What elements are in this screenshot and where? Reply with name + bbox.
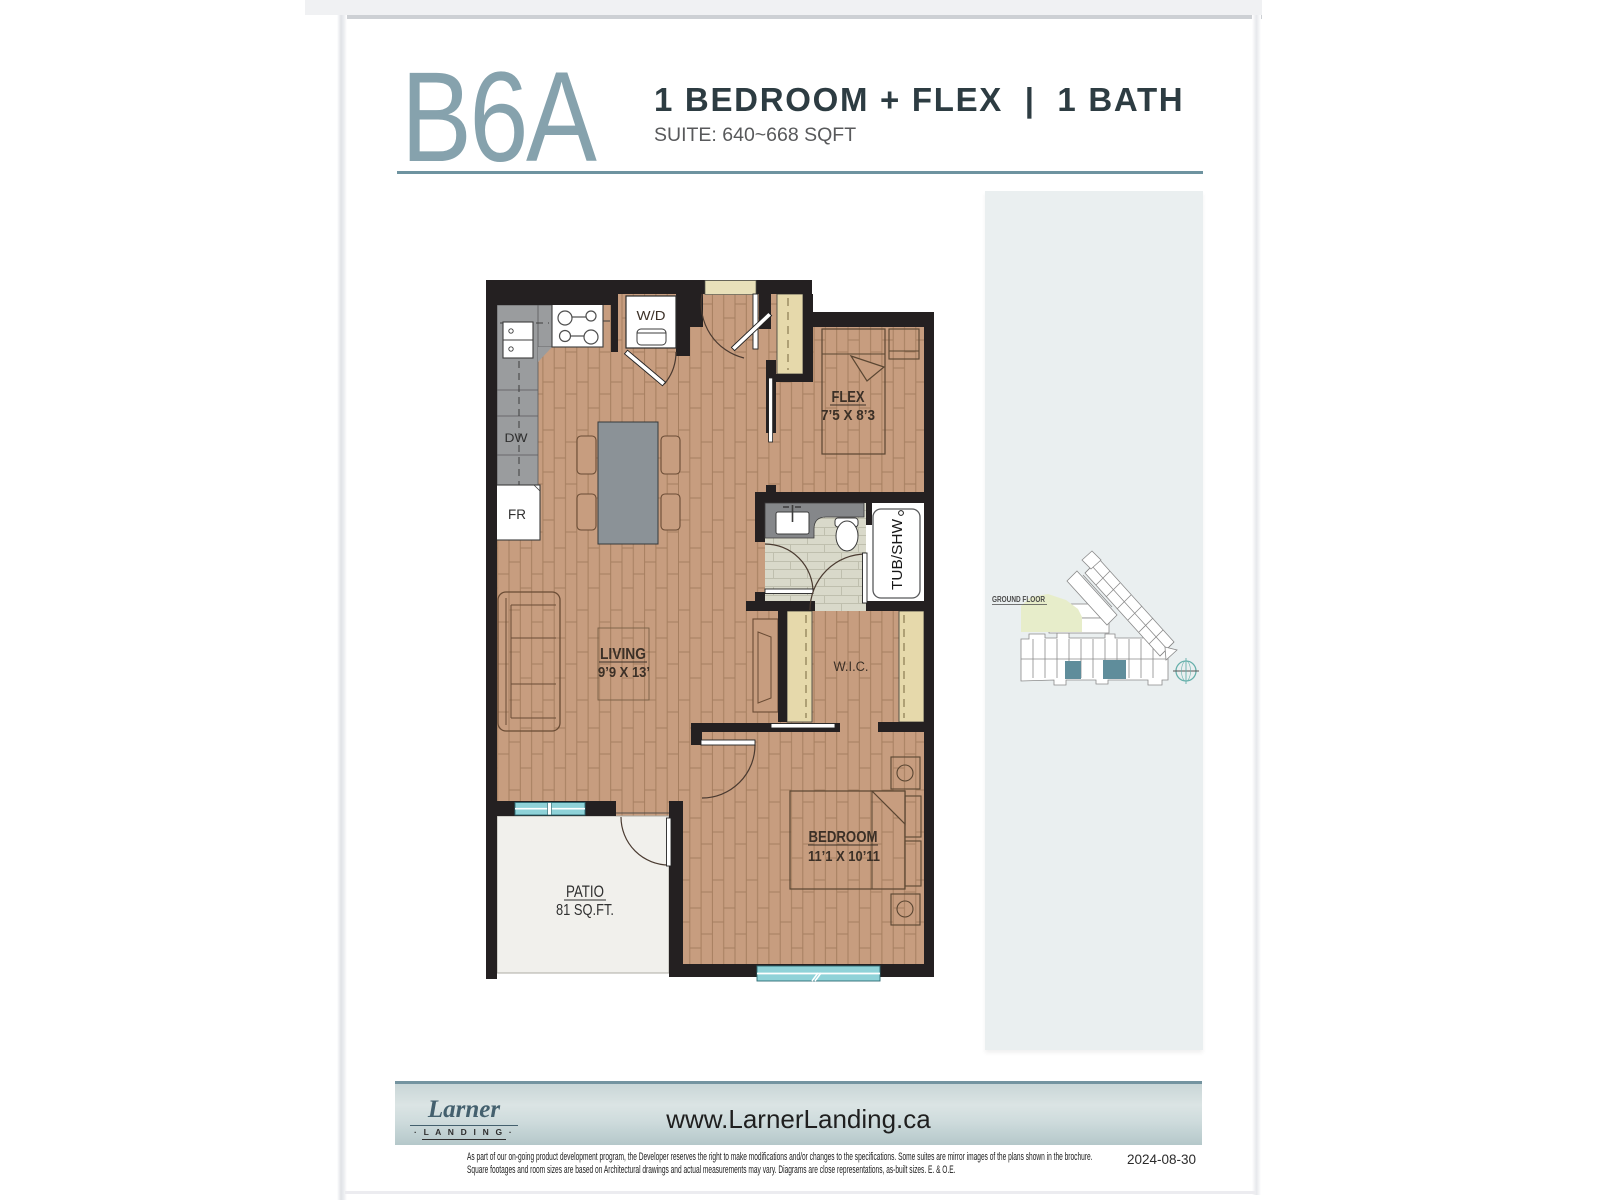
svg-text:LIVING: LIVING <box>600 646 646 663</box>
svg-text:11’1 X 10’11: 11’1 X 10’11 <box>808 848 880 865</box>
svg-text:7’5 X 8’3: 7’5 X 8’3 <box>821 407 875 424</box>
svg-text:9’9 X 13’: 9’9 X 13’ <box>598 664 650 681</box>
svg-text:W/D: W/D <box>637 308 666 323</box>
svg-text:W.I.C.: W.I.C. <box>834 659 869 674</box>
svg-text:GROUND FLOOR: GROUND FLOOR <box>992 595 1045 604</box>
svg-text:FLEX: FLEX <box>832 389 866 406</box>
svg-text:81 SQ.FT.: 81 SQ.FT. <box>556 902 614 919</box>
svg-text:DW: DW <box>505 431 529 445</box>
svg-text:TUB/SHW: TUB/SHW <box>890 519 906 590</box>
svg-text:FR: FR <box>508 506 526 522</box>
svg-text:PATIO: PATIO <box>566 882 604 901</box>
svg-text:BEDROOM: BEDROOM <box>809 829 878 846</box>
